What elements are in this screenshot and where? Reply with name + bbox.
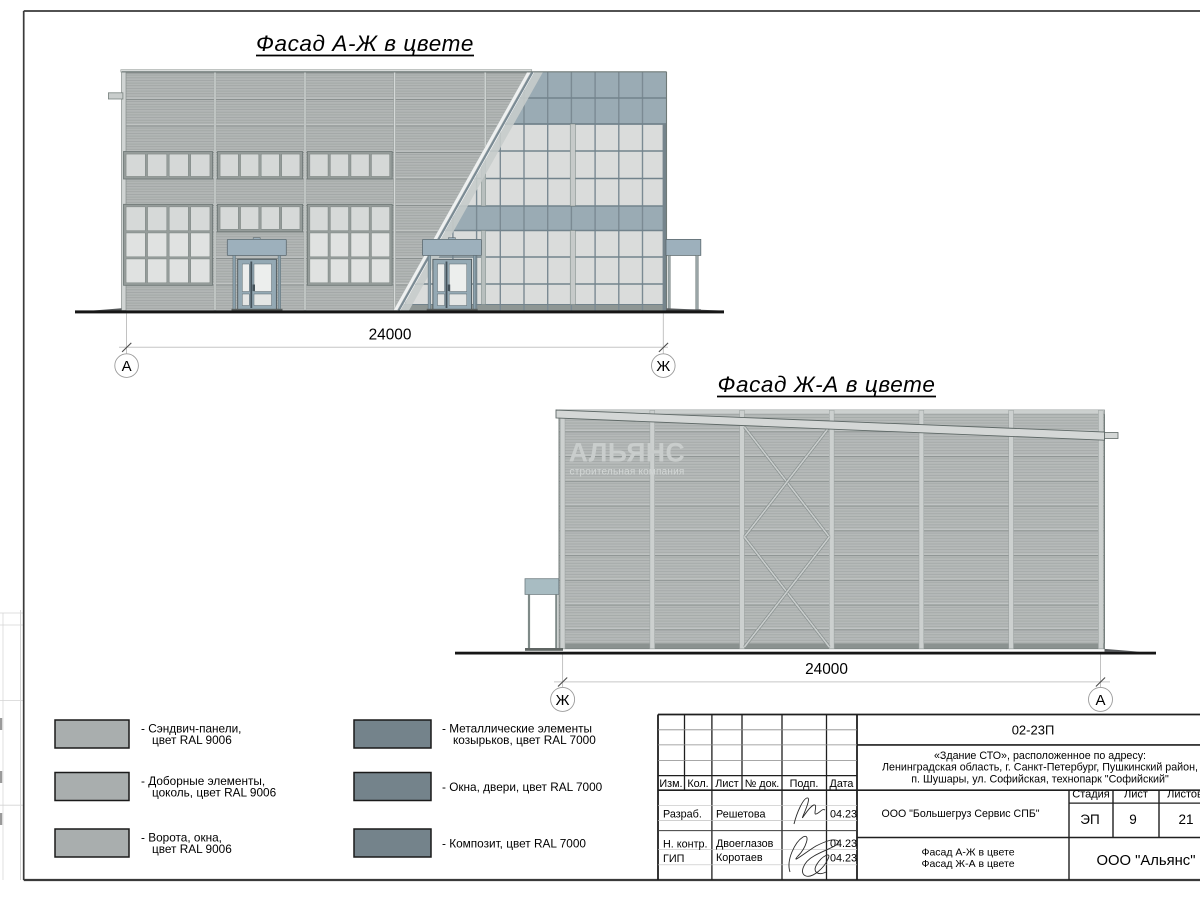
svg-text:Н. контр.: Н. контр. <box>663 838 708 850</box>
svg-text:козырьков, цвет RAL 7000: козырьков, цвет RAL 7000 <box>453 733 596 747</box>
svg-text:Стадия: Стадия <box>1072 788 1110 800</box>
svg-text:ООО "Альянс": ООО "Альянс" <box>1097 853 1196 869</box>
svg-text:Фасад Ж-А в цвете: Фасад Ж-А в цвете <box>921 858 1014 870</box>
svg-text:04.23: 04.23 <box>830 809 857 821</box>
svg-text:Ленинградская область, г. Санк: Ленинградская область, г. Санкт-Петербур… <box>882 762 1198 774</box>
svg-text:Изм.: Изм. <box>659 778 682 790</box>
svg-text:А: А <box>1095 692 1105 709</box>
svg-text:Разраб.: Разраб. <box>663 809 702 821</box>
svg-text:Фасад Ж-А в цвете: Фасад Ж-А в цвете <box>717 372 935 397</box>
svg-text:п. Шушары, ул. Софийская, техн: п. Шушары, ул. Софийская, технопарк "Соф… <box>911 773 1169 785</box>
svg-text:А: А <box>122 358 132 375</box>
svg-text:Кол.: Кол. <box>687 778 708 790</box>
svg-text:Решетова: Решетова <box>716 809 766 821</box>
svg-text:Коротаев: Коротаев <box>716 852 763 864</box>
svg-text:цвет RAL 9006: цвет RAL 9006 <box>152 733 232 747</box>
svg-text:ГИП: ГИП <box>663 853 684 865</box>
svg-text:Двоеглазов: Двоеглазов <box>716 838 774 850</box>
svg-text:Ж: Ж <box>656 358 670 375</box>
svg-text:04.23: 04.23 <box>830 853 857 865</box>
svg-text:№ док.: № док. <box>745 778 780 790</box>
svg-text:цвет RAL 9006: цвет RAL 9006 <box>152 842 232 856</box>
svg-text:24000: 24000 <box>369 327 412 344</box>
svg-text:- Композит, цвет RAL 7000: - Композит, цвет RAL 7000 <box>442 836 586 850</box>
svg-text:Фасад А-Ж в цвете: Фасад А-Ж в цвете <box>921 847 1014 859</box>
svg-text:Ж: Ж <box>556 692 570 709</box>
svg-text:24000: 24000 <box>805 661 848 678</box>
svg-text:Дата: Дата <box>830 778 854 790</box>
svg-text:21: 21 <box>1178 812 1193 827</box>
svg-text:строительная компания: строительная компания <box>570 467 685 478</box>
svg-text:Фасад А-Ж в цвете: Фасад А-Ж в цвете <box>256 31 474 56</box>
svg-text:9: 9 <box>1129 812 1137 827</box>
svg-text:«Здание СТО», расположенное по: «Здание СТО», расположенное по адресу: <box>934 750 1146 762</box>
svg-text:Подп.: Подп. <box>790 778 819 790</box>
svg-text:цоколь, цвет RAL 9006: цоколь, цвет RAL 9006 <box>152 785 277 799</box>
svg-text:Лист: Лист <box>1124 788 1148 800</box>
svg-text:- Окна, двери, цвет RAL 7000: - Окна, двери, цвет RAL 7000 <box>442 780 603 794</box>
svg-text:Листов: Листов <box>1167 788 1200 800</box>
svg-text:АЛЬЯНС: АЛЬЯНС <box>569 438 685 468</box>
svg-text:ООО "Большегруз Сервис СПБ": ООО "Большегруз Сервис СПБ" <box>881 808 1039 820</box>
svg-text:02-23П: 02-23П <box>1012 722 1055 737</box>
svg-text:ЭП: ЭП <box>1080 812 1099 827</box>
svg-text:Лист: Лист <box>715 778 739 790</box>
